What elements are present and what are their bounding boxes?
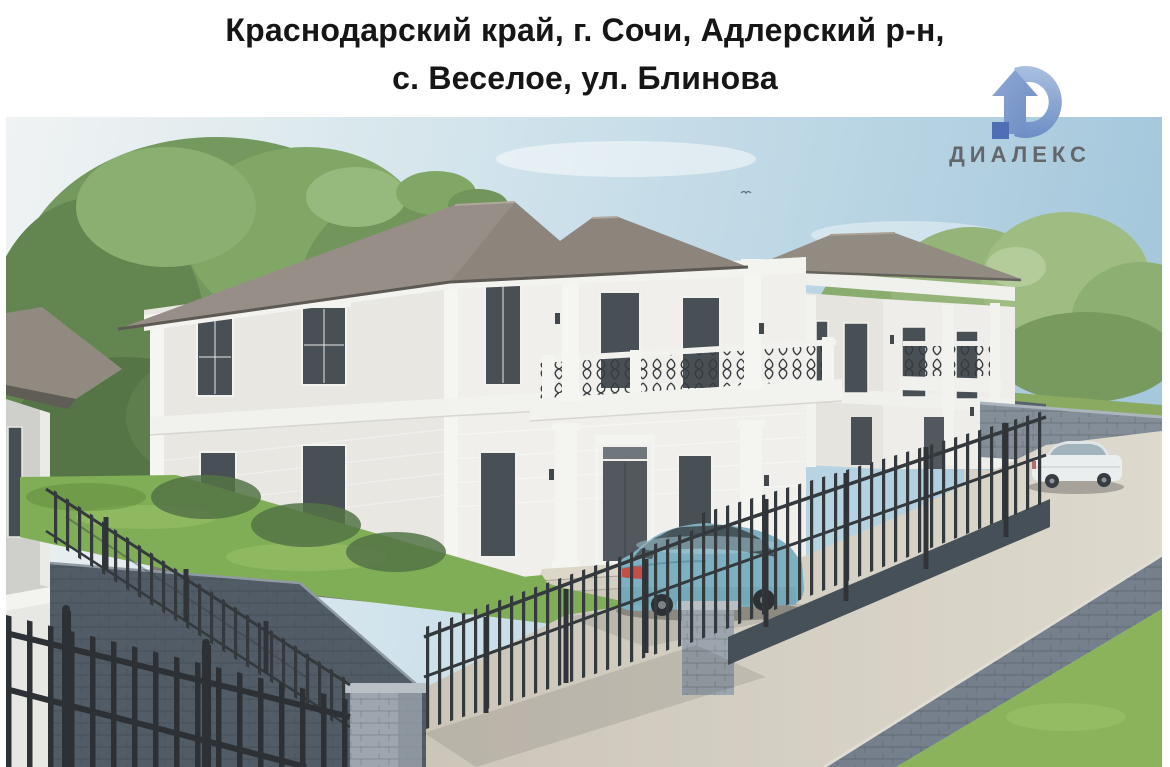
render-image: [6, 117, 1162, 767]
title-line-1: Краснодарский край, г. Сочи, Адлерский р…: [0, 6, 1170, 54]
company-logo: ДИАЛЕКС: [934, 62, 1106, 172]
logo-text: ДИАЛЕКС: [934, 142, 1106, 168]
architectural-render: [6, 117, 1162, 767]
house-arrow-logo-icon: [984, 62, 1064, 142]
logo-square: [992, 122, 1009, 139]
haze-overlay: [6, 117, 1162, 767]
